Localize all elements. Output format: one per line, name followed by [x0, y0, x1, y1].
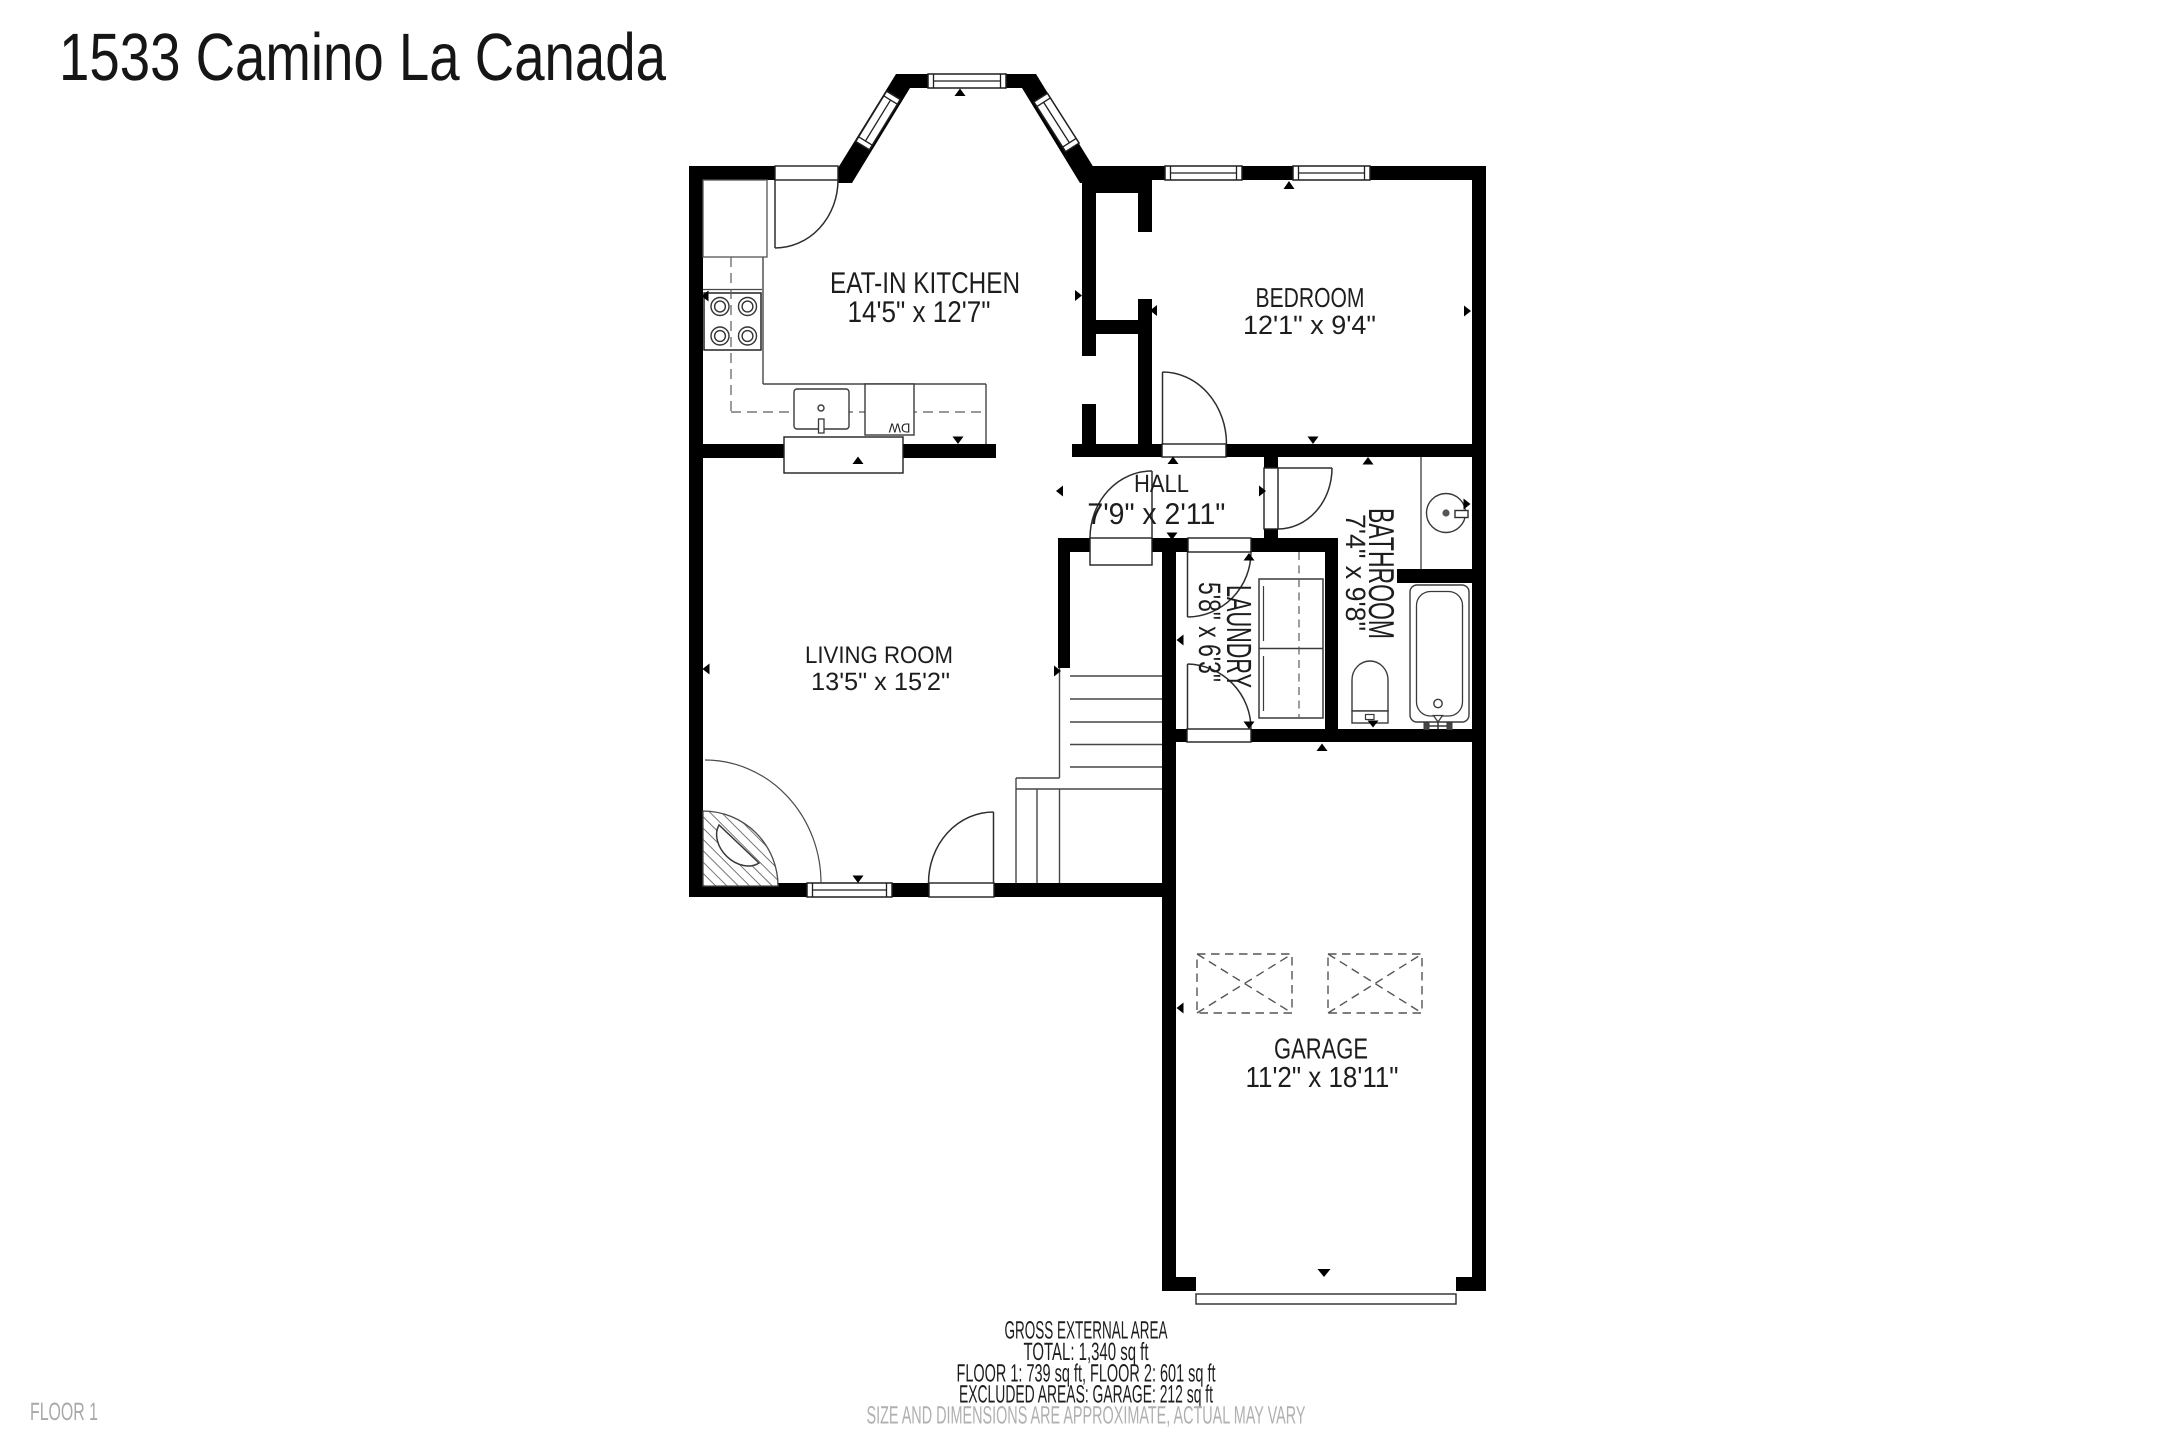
svg-text:GARAGE: GARAGE — [1274, 1034, 1368, 1066]
svg-text:5'8" x 6'3": 5'8" x 6'3" — [1192, 582, 1227, 682]
svg-text:HALL: HALL — [1134, 470, 1189, 498]
svg-text:DW: DW — [888, 421, 910, 436]
svg-text:14'5" x 12'7": 14'5" x 12'7" — [848, 296, 991, 329]
svg-text:7'4" x 9'8": 7'4" x 9'8" — [1340, 514, 1371, 631]
svg-text:SIZE AND DIMENSIONS ARE APPROX: SIZE AND DIMENSIONS ARE APPROXIMATE, ACT… — [867, 1402, 1306, 1430]
svg-text:13'5" x 15'2": 13'5" x 15'2" — [811, 668, 950, 696]
svg-text:1533 Camino La Canada: 1533 Camino La Canada — [59, 20, 667, 95]
svg-text:12'1" x 9'4": 12'1" x 9'4" — [1243, 310, 1376, 340]
svg-text:BEDROOM: BEDROOM — [1256, 282, 1365, 313]
svg-text:FLOOR 1: FLOOR 1 — [30, 1398, 98, 1426]
svg-text:11'2" x 18'11": 11'2" x 18'11" — [1246, 1062, 1399, 1094]
svg-text:7'9" x 2'11": 7'9" x 2'11" — [1087, 498, 1225, 531]
svg-text:LIVING ROOM: LIVING ROOM — [805, 642, 953, 669]
